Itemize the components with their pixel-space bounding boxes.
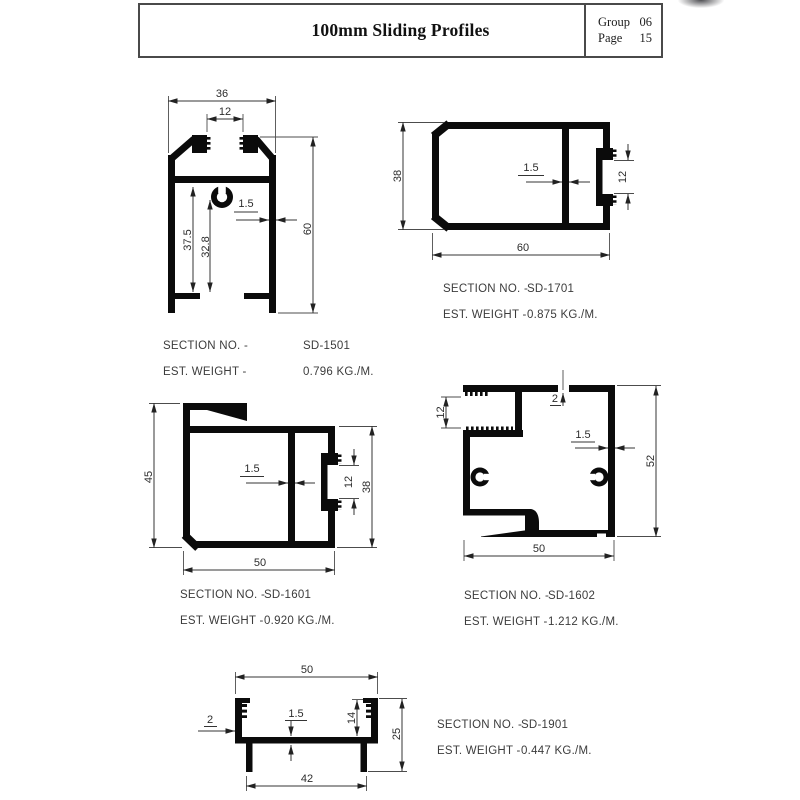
dim-height: 38 bbox=[392, 170, 404, 182]
dim-outer-width: 36 bbox=[216, 88, 228, 100]
dim-top-slot: 12 bbox=[219, 106, 231, 118]
est-weight-value: 1.212 KG./M. bbox=[548, 616, 619, 628]
sd-1901-caption: SECTION NO. -SD-1901 EST. WEIGHT -0.447 … bbox=[437, 719, 592, 770]
sd-1701-drawing: 38 1.5 12 60 bbox=[393, 103, 653, 268]
section-no-label: SECTION NO. - bbox=[443, 283, 527, 295]
page-title: 100mm Sliding Profiles bbox=[140, 5, 661, 56]
est-weight-value: 0.796 KG./M. bbox=[303, 366, 374, 378]
dim-groove: 12 bbox=[617, 171, 629, 183]
est-weight-value: 0.875 KG./M. bbox=[527, 309, 598, 321]
dim-width: 50 bbox=[533, 543, 545, 555]
sd-1501-caption: SECTION NO. -SD-1501 EST. WEIGHT -0.796 … bbox=[163, 340, 374, 391]
dim-top-wall: 2 bbox=[552, 393, 558, 405]
dim-right-height: 38 bbox=[361, 481, 373, 493]
dim-side-wall: 2 bbox=[207, 714, 213, 726]
section-no-value: SD-1601 bbox=[264, 589, 311, 601]
dim-height: 52 bbox=[645, 455, 657, 467]
group-page-cell: Group 06 Page 15 bbox=[586, 5, 661, 56]
sd-1601-caption: SECTION NO. -SD-1601 EST. WEIGHT -0.920 … bbox=[180, 589, 335, 640]
catalog-page: 100mm Sliding Profiles Group 06 Page 15 bbox=[0, 0, 800, 800]
dim-wall: 1.5 bbox=[244, 463, 259, 475]
est-weight-value: 0.920 KG./M. bbox=[264, 615, 335, 627]
sd-1501-drawing: 36 12 60 37.5 32.8 1.5 bbox=[150, 85, 350, 320]
sd-1602-drawing: 2 12 1.5 52 50 bbox=[428, 368, 678, 568]
dim-top-width: 50 bbox=[301, 664, 313, 676]
page-value: 15 bbox=[640, 31, 653, 46]
profile-cross-section bbox=[168, 135, 276, 313]
dim-groove: 12 bbox=[343, 476, 355, 488]
dimensions: 36 12 60 37.5 32.8 1.5 bbox=[168, 88, 318, 313]
section-no-label: SECTION NO. - bbox=[163, 340, 303, 352]
section-no-label: SECTION NO. - bbox=[464, 590, 548, 602]
profile-cross-section bbox=[463, 384, 615, 538]
sd-1901-drawing: 50 2 1.5 14 25 42 bbox=[183, 663, 433, 800]
dim-wall: 1.5 bbox=[523, 162, 538, 174]
scan-smudge bbox=[678, 0, 724, 8]
group-value: 06 bbox=[640, 15, 653, 30]
dim-clip-depth: 32.8 bbox=[200, 236, 212, 257]
section-no-value: SD-1701 bbox=[527, 283, 574, 295]
dim-channel-height: 14 bbox=[346, 712, 358, 724]
sd-1701-caption: SECTION NO. -SD-1701 EST. WEIGHT -0.875 … bbox=[443, 283, 598, 334]
dim-pocket: 12 bbox=[435, 406, 447, 418]
section-no-value: SD-1602 bbox=[548, 590, 595, 602]
section-no-label: SECTION NO. - bbox=[437, 719, 521, 731]
dim-web-depth: 37.5 bbox=[182, 229, 194, 250]
est-weight-label: EST. WEIGHT - bbox=[163, 366, 303, 378]
section-no-label: SECTION NO. - bbox=[180, 589, 264, 601]
est-weight-label: EST. WEIGHT - bbox=[437, 745, 521, 757]
dim-height: 25 bbox=[391, 728, 403, 740]
est-weight-label: EST. WEIGHT - bbox=[180, 615, 264, 627]
dim-leg-span: 42 bbox=[301, 773, 313, 785]
page-label: Page bbox=[598, 31, 622, 46]
dim-height: 60 bbox=[302, 223, 314, 235]
est-weight-value: 0.447 KG./M. bbox=[521, 745, 592, 757]
header-box: 100mm Sliding Profiles Group 06 Page 15 bbox=[138, 3, 663, 58]
group-label: Group bbox=[598, 15, 630, 30]
sd-1601-drawing: 45 1.5 12 38 50 bbox=[138, 393, 398, 578]
est-weight-label: EST. WEIGHT - bbox=[443, 309, 527, 321]
est-weight-label: EST. WEIGHT - bbox=[464, 616, 548, 628]
dim-wall: 1.5 bbox=[575, 429, 590, 441]
dim-base-wall: 1.5 bbox=[288, 708, 303, 720]
dim-width: 60 bbox=[517, 242, 529, 254]
sd-1602-caption: SECTION NO. -SD-1602 EST. WEIGHT -1.212 … bbox=[464, 590, 619, 641]
dim-width: 50 bbox=[254, 557, 266, 569]
profile-cross-section bbox=[183, 403, 340, 548]
section-no-value: SD-1501 bbox=[303, 340, 350, 352]
dim-height: 45 bbox=[143, 471, 155, 483]
dim-wall: 1.5 bbox=[238, 198, 253, 210]
section-no-value: SD-1901 bbox=[521, 719, 568, 731]
